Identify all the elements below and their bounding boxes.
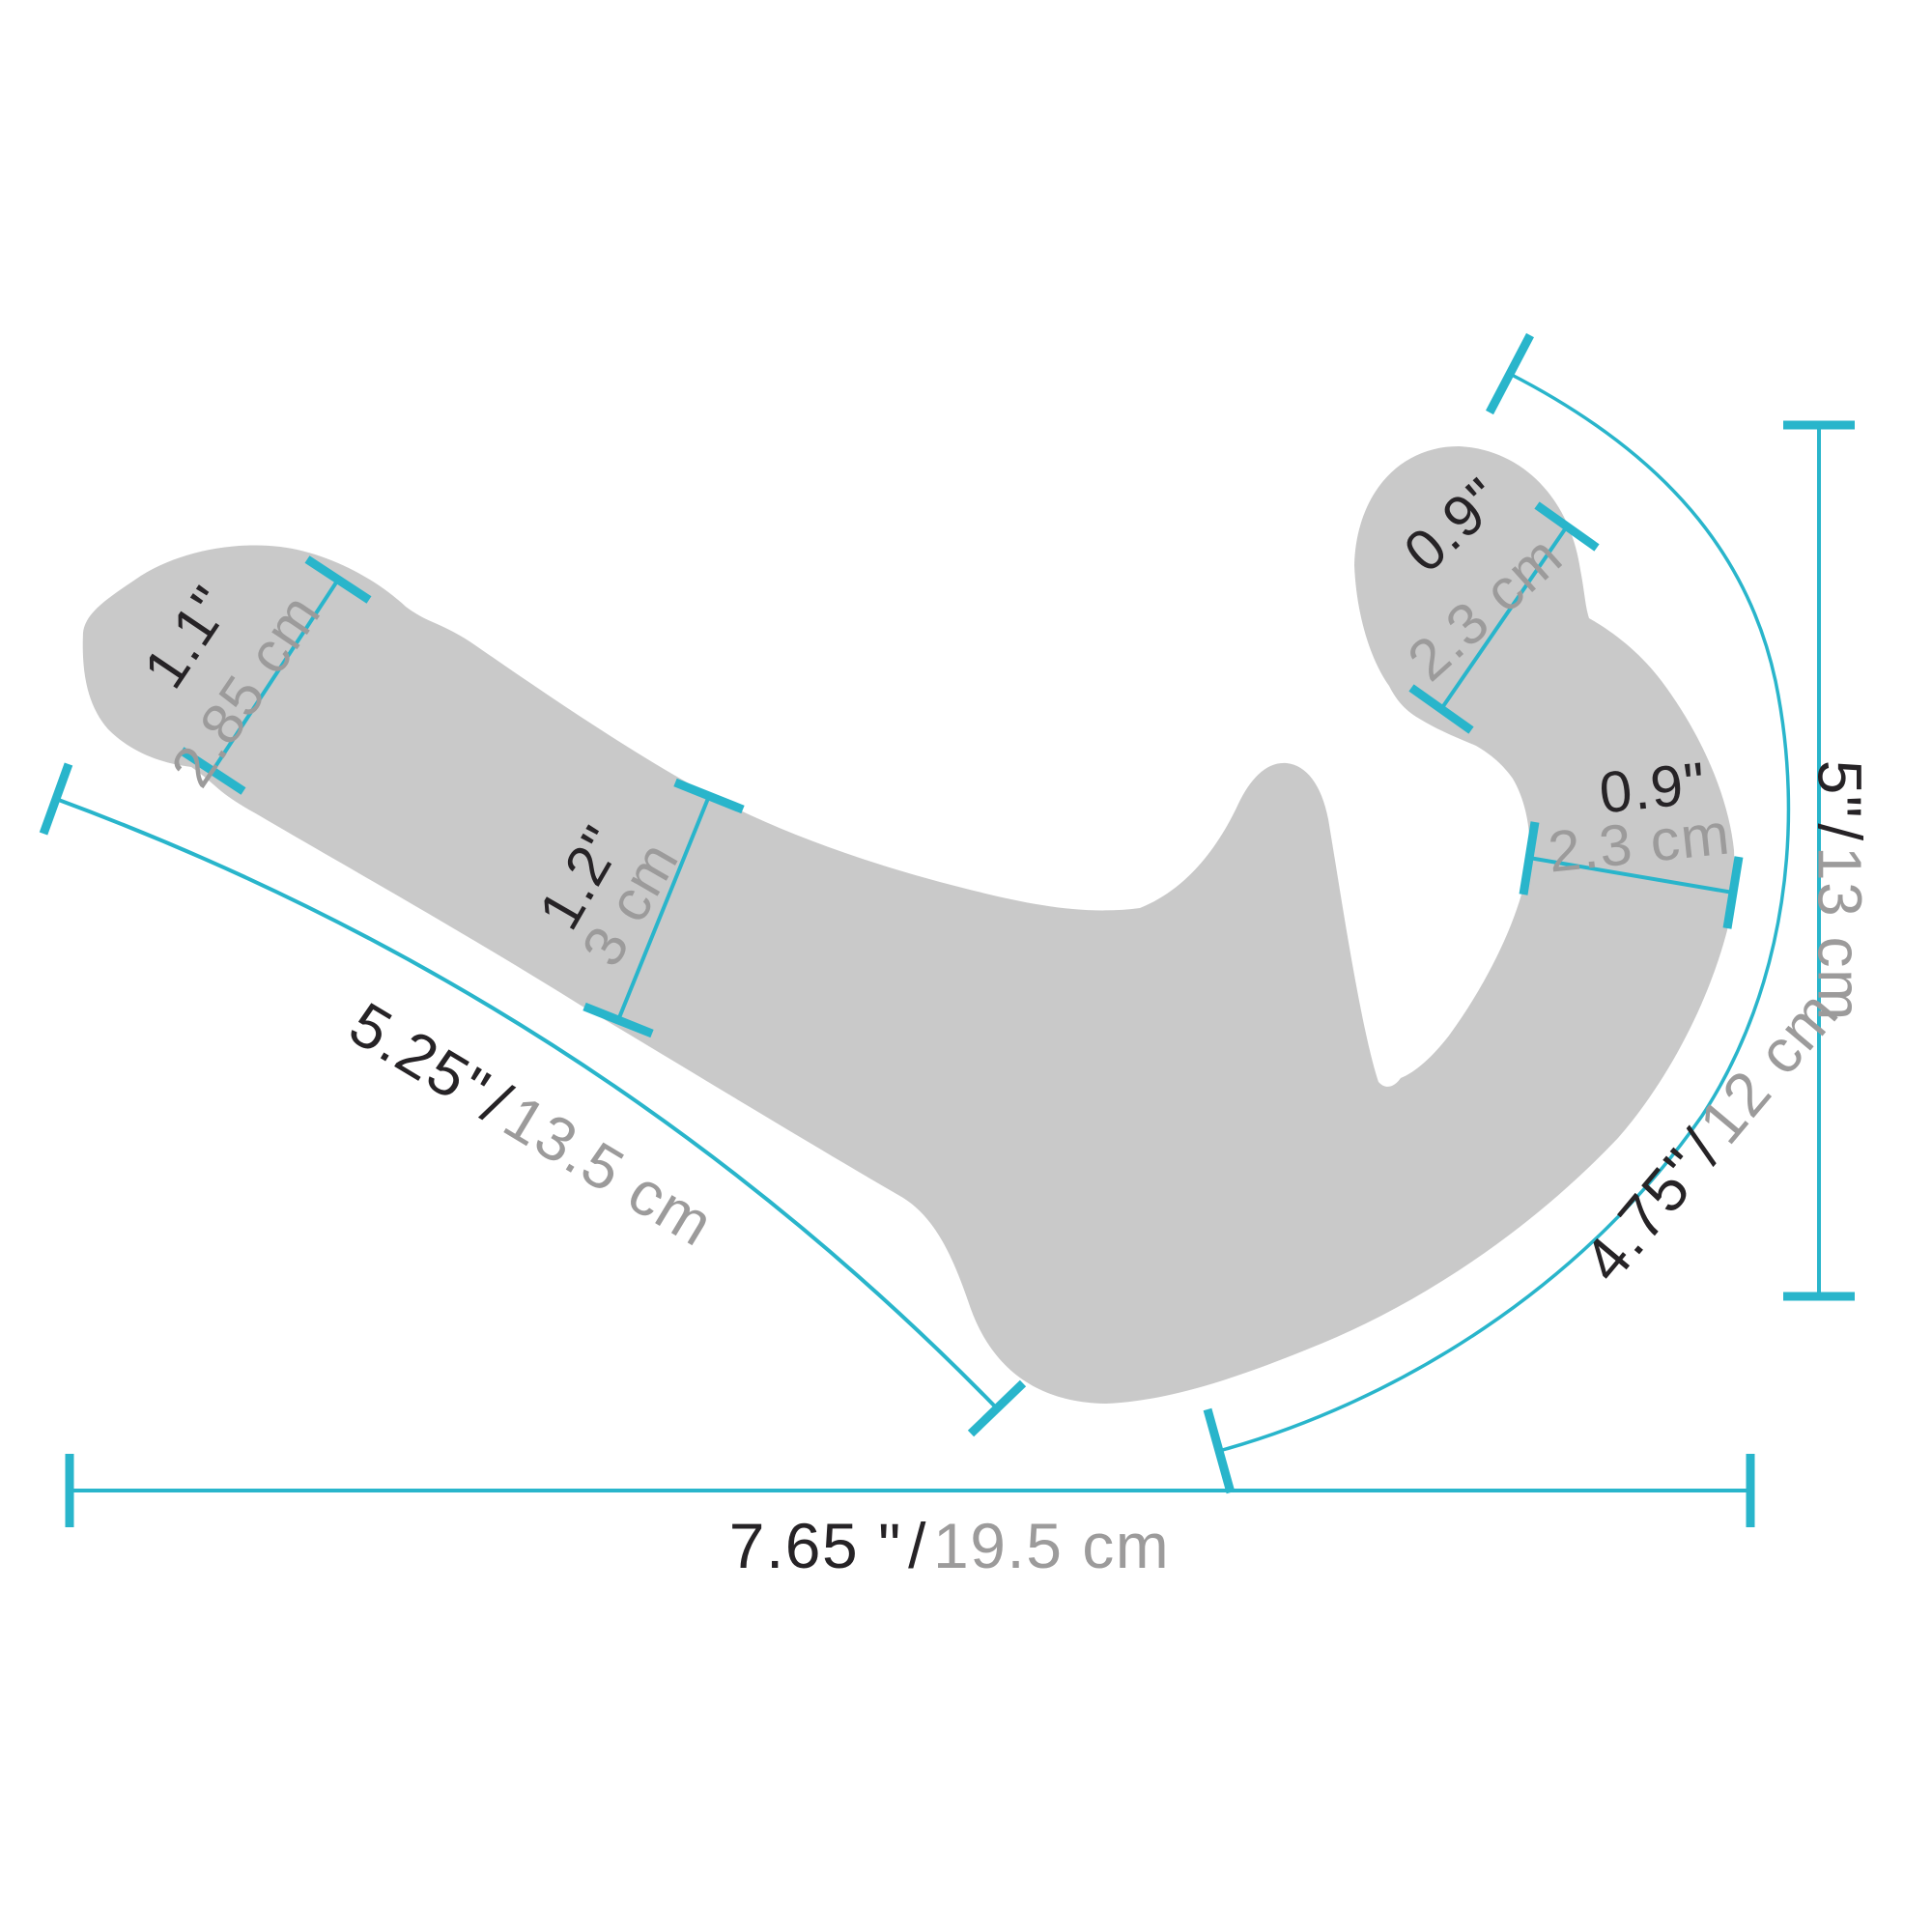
shaft-length-imperial-label: 5.25" (338, 989, 502, 1125)
total-length-label: 7.65 " / 19.5 cm (729, 1510, 1171, 1581)
product-dimension-diagram: 1.1" 2.85 cm 1.2" 3 cm 5.25" / 13.5 cm 7… (0, 0, 1932, 1932)
dimension-diagram-page: 1.1" 2.85 cm 1.2" 3 cm 5.25" / 13.5 cm 7… (0, 0, 1932, 1932)
shaft-length-end-tick (43, 764, 69, 834)
total-length-separator: / (908, 1510, 927, 1581)
curve-length-end-tick (1207, 1409, 1231, 1492)
overall-height-imperial-label: 5" (1805, 760, 1875, 819)
overall-height-label: 5" / 13 cm (1805, 760, 1875, 1022)
shaft-length-metric-label: 13.5 cm (493, 1082, 725, 1260)
curve-length-metric-label: 12 cm (1686, 978, 1852, 1157)
overall-height-separator: / (1805, 823, 1875, 841)
total-length-imperial-label: 7.65 " (729, 1510, 902, 1581)
curve-length-end-tick (1490, 335, 1530, 412)
total-length-dimension: 7.65 " / 19.5 cm (70, 1454, 1750, 1581)
total-length-metric-label: 19.5 cm (933, 1510, 1170, 1581)
overall-height-dimension: 5" / 13 cm (1783, 425, 1875, 1296)
